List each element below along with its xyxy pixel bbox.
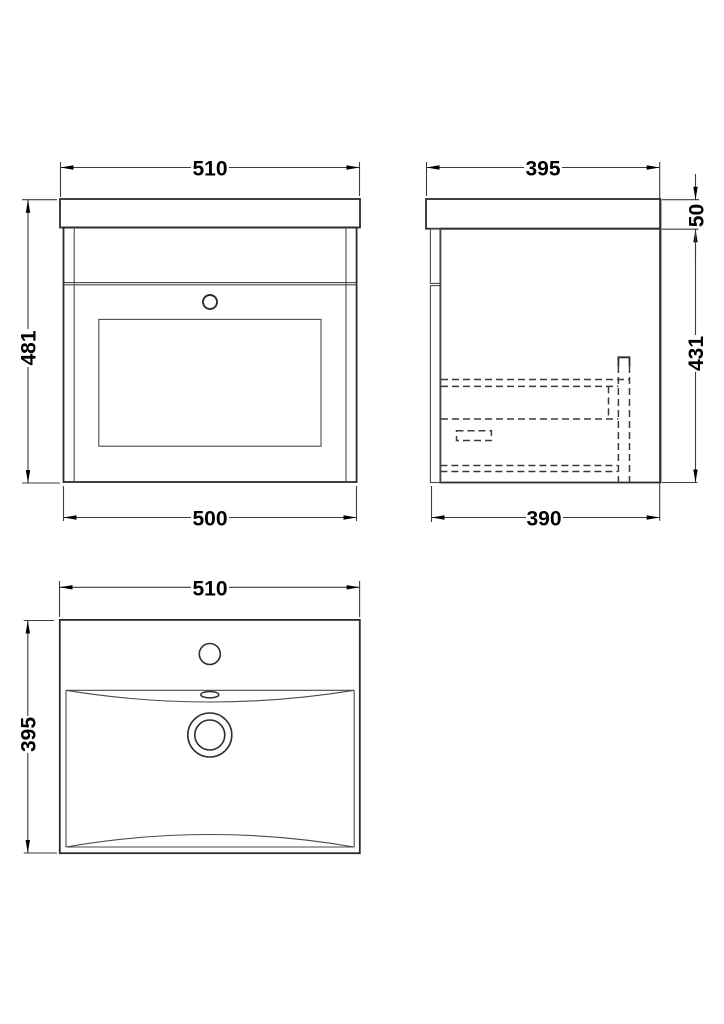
svg-text:500: 500 [192,508,227,531]
svg-text:50: 50 [686,204,709,227]
svg-text:481: 481 [18,330,41,365]
svg-text:395: 395 [17,717,40,752]
svg-text:510: 510 [192,158,227,181]
svg-text:395: 395 [525,158,560,181]
svg-text:431: 431 [685,336,708,371]
svg-text:510: 510 [192,577,227,600]
svg-text:390: 390 [526,508,561,531]
